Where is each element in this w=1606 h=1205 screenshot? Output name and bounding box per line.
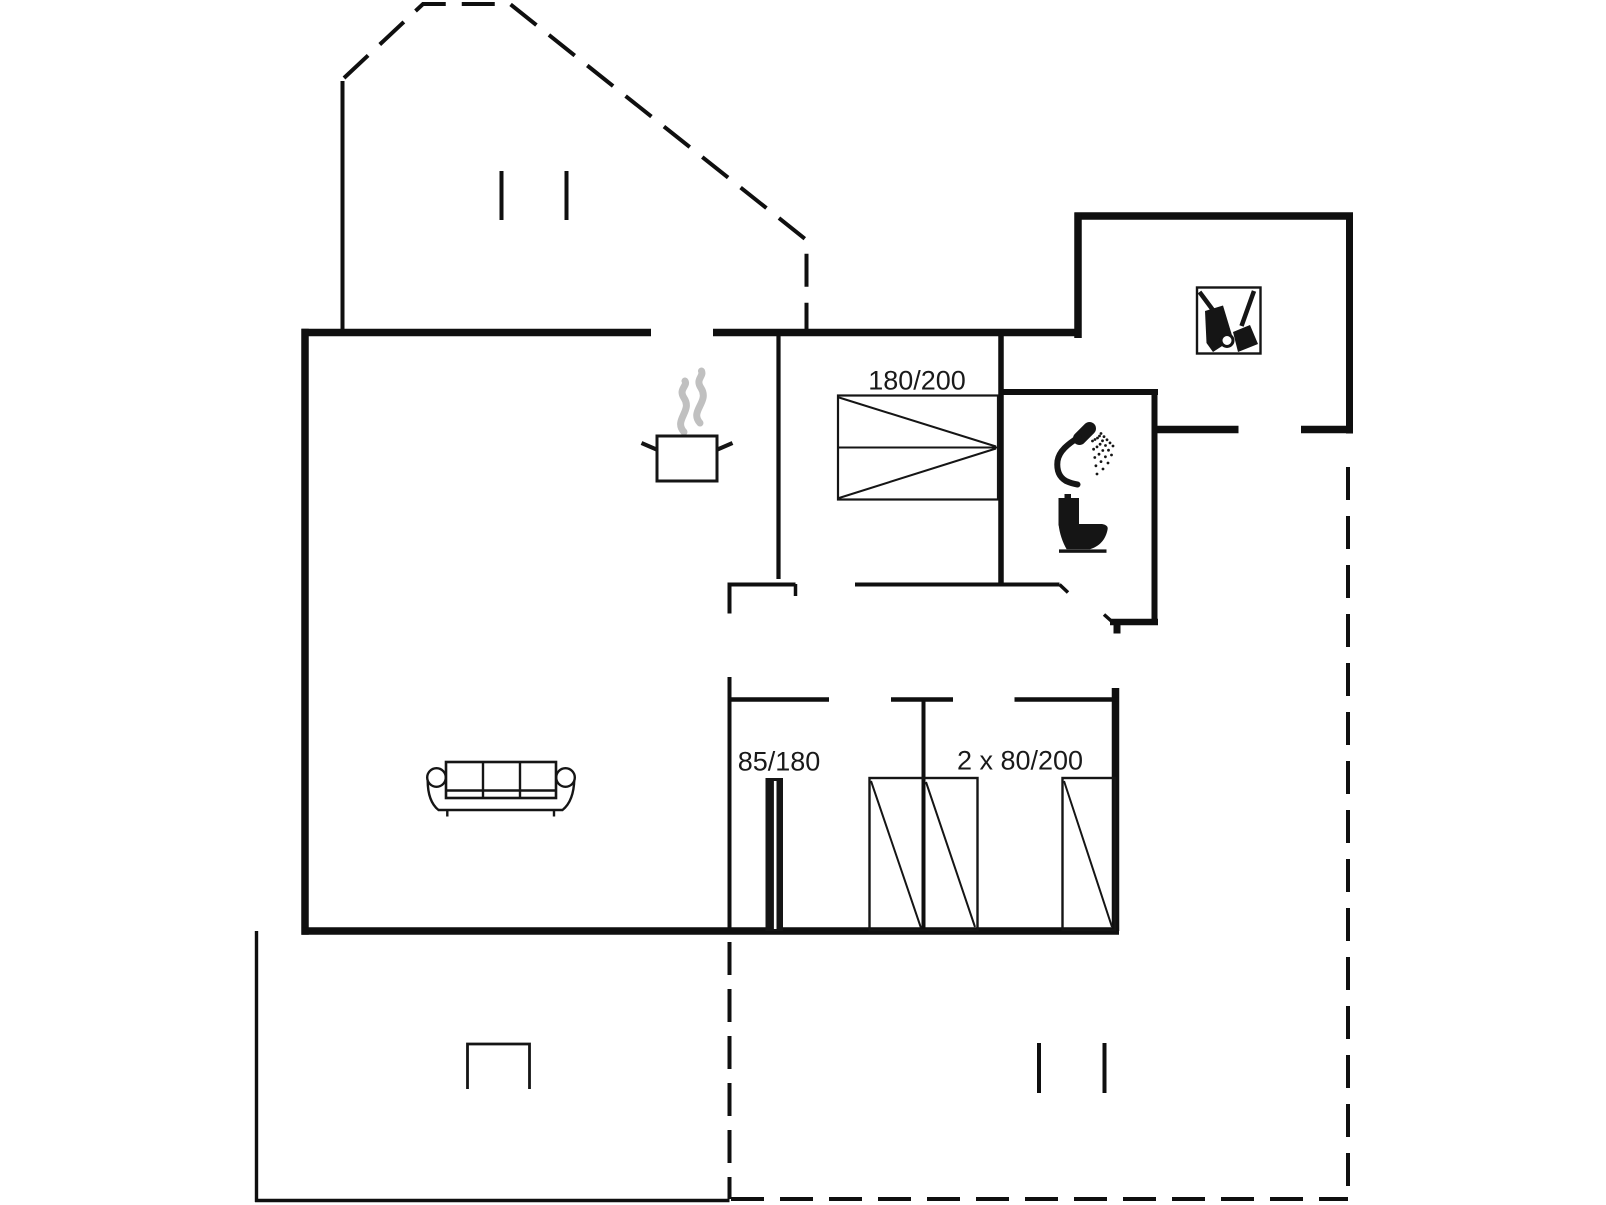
svg-text:180/200: 180/200 (868, 366, 966, 396)
svg-text:85/180: 85/180 (738, 747, 821, 777)
svg-text:2 x 80/200: 2 x 80/200 (957, 746, 1083, 776)
